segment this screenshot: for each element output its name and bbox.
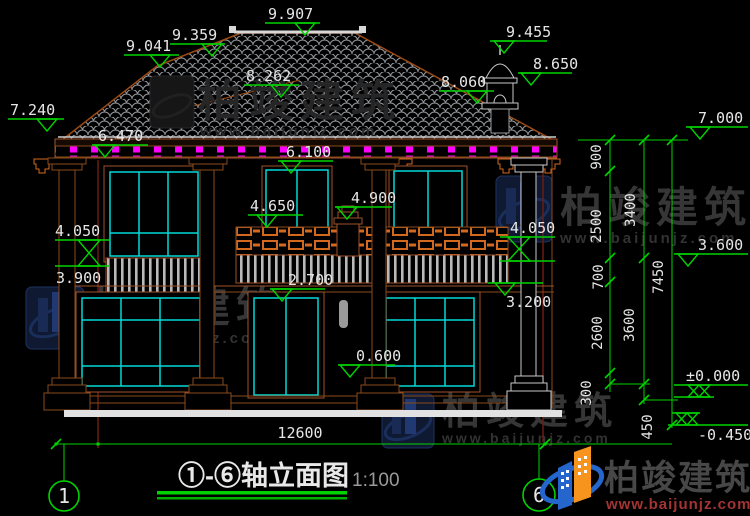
dim-2600: 2600 xyxy=(590,316,606,350)
elev-9041: 9.041 xyxy=(126,37,171,55)
elev-9455: 9.455 xyxy=(506,23,551,41)
brand-logo-icon xyxy=(538,446,607,510)
elev-3900: 3.900 xyxy=(56,269,101,287)
elev-3600: 3.600 xyxy=(698,236,743,254)
elev-7000: 7.000 xyxy=(698,109,743,127)
elev-9359: 9.359 xyxy=(172,26,217,44)
elev-7240: 7.240 xyxy=(10,101,55,119)
entry-door xyxy=(248,292,324,398)
elev-4050-right: 4.050 xyxy=(510,219,555,237)
dim-3600: 3600 xyxy=(622,308,638,342)
window-2f-left xyxy=(104,166,204,262)
dim-3400: 3400 xyxy=(623,193,639,227)
elevation-marker xyxy=(8,119,64,131)
elev-8262: 8.262 xyxy=(246,67,291,85)
elevation-marker xyxy=(674,254,748,266)
cad-elevation-drawing: 柏竣建筑 www.baijunjz.com 柏竣建筑 www.baijunjz.… xyxy=(0,0,750,516)
title-underline xyxy=(157,497,347,500)
elevation-marker-zero xyxy=(674,385,748,397)
dim-450: 450 xyxy=(640,414,656,439)
title-underline xyxy=(157,491,347,495)
elev-8650: 8.650 xyxy=(533,55,578,73)
axis-number-left: 1 xyxy=(58,484,70,508)
title-text: ①-⑥轴立面图 xyxy=(178,460,349,491)
axis-bubble-1: 1 xyxy=(49,444,79,511)
first-floor xyxy=(74,292,554,403)
elevation-marker xyxy=(686,127,748,139)
drawing-surface: 柏竣建筑 www.baijunjz.com 柏竣建筑 www.baijunjz.… xyxy=(0,0,750,516)
elev-6100: 6.100 xyxy=(286,143,331,161)
window-1f-right xyxy=(380,292,480,392)
elev-4050-left: 4.050 xyxy=(55,222,100,240)
elevation-marker-neg xyxy=(668,413,748,425)
elev-3200: 3.200 xyxy=(506,293,551,311)
elev-2700: 2.700 xyxy=(288,271,333,289)
elev-8060: 8.060 xyxy=(441,73,486,91)
elev-4900: 4.900 xyxy=(351,189,396,207)
dim-700: 700 xyxy=(591,264,607,289)
elev-0000: ±0.000 xyxy=(686,367,740,385)
ground-line xyxy=(64,410,562,417)
ridge-ornament xyxy=(229,26,236,33)
dim-300: 300 xyxy=(579,380,595,405)
brand-name: 柏竣建筑 xyxy=(604,458,750,498)
dim-2500: 2500 xyxy=(589,209,605,243)
title-scale: 1:100 xyxy=(352,470,400,491)
railing-left xyxy=(106,258,202,292)
elev-m0450: -0.450 xyxy=(698,426,750,444)
wall-lamp xyxy=(339,300,348,328)
balcony-pier xyxy=(334,206,362,256)
brand-badge: 柏竣建筑 www.baijunjz.com xyxy=(538,446,750,513)
dim-7450: 7450 xyxy=(651,260,667,294)
drawing-title: ①-⑥轴立面图 1:100 xyxy=(157,460,400,500)
elev-6470: 6.470 xyxy=(98,127,143,145)
dim-900: 900 xyxy=(589,144,605,169)
elev-4650: 4.650 xyxy=(250,197,295,215)
elevation-marker xyxy=(518,73,572,85)
elevation-marker xyxy=(490,41,547,53)
watermark-text: 柏竣建筑 xyxy=(198,77,402,126)
watermark-logo xyxy=(150,76,194,128)
elev-9907: 9.907 xyxy=(268,5,313,23)
dim-total-width: 12600 xyxy=(277,424,322,442)
elev-0600: 0.600 xyxy=(356,347,401,365)
ridge-ornament xyxy=(359,26,366,33)
brand-url: www.baijunjz.com xyxy=(605,496,750,513)
window-1f-left xyxy=(76,292,206,392)
